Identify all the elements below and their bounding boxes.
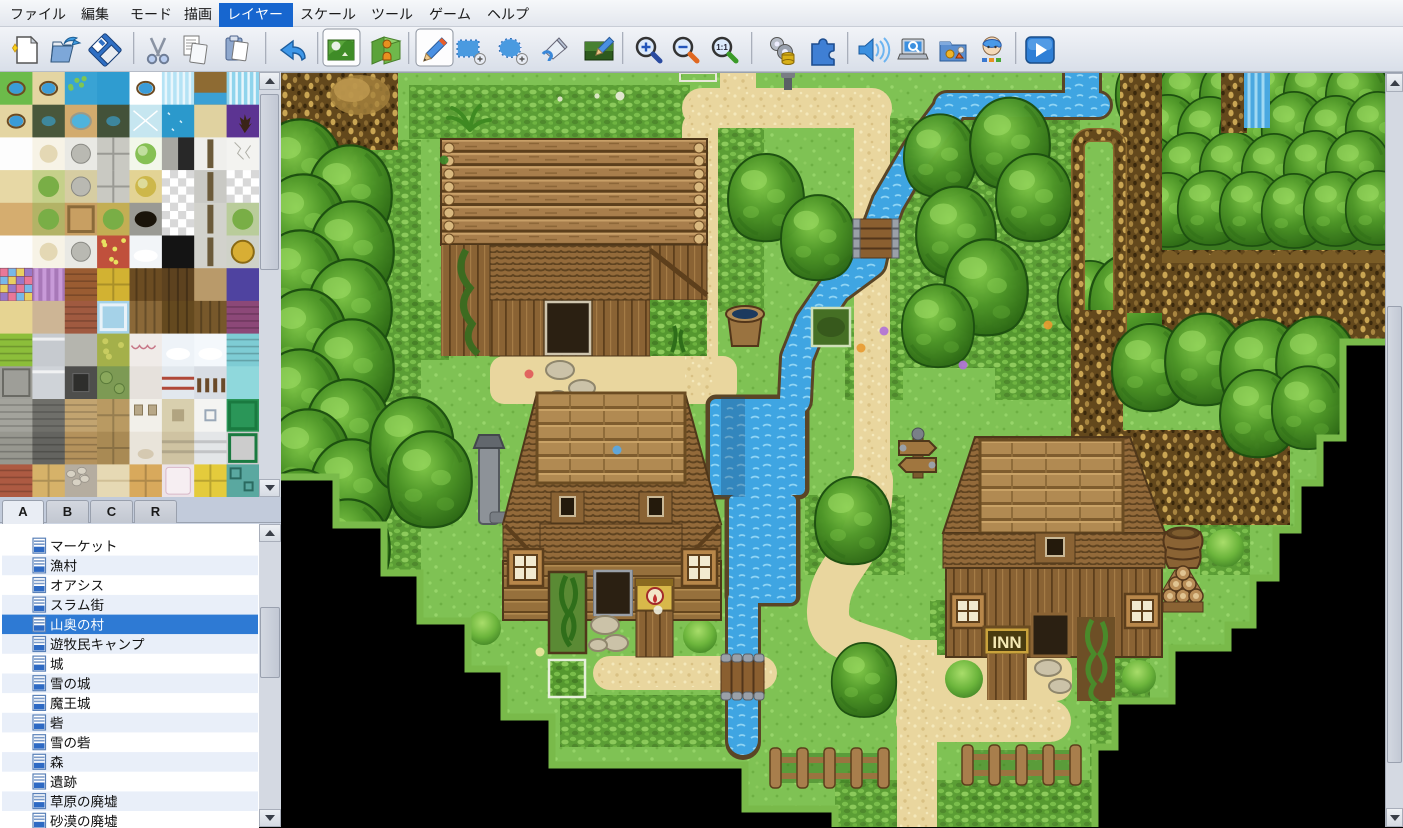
svg-text:1:1: 1:1 [716,43,728,52]
svg-text:INN: INN [992,633,1021,652]
